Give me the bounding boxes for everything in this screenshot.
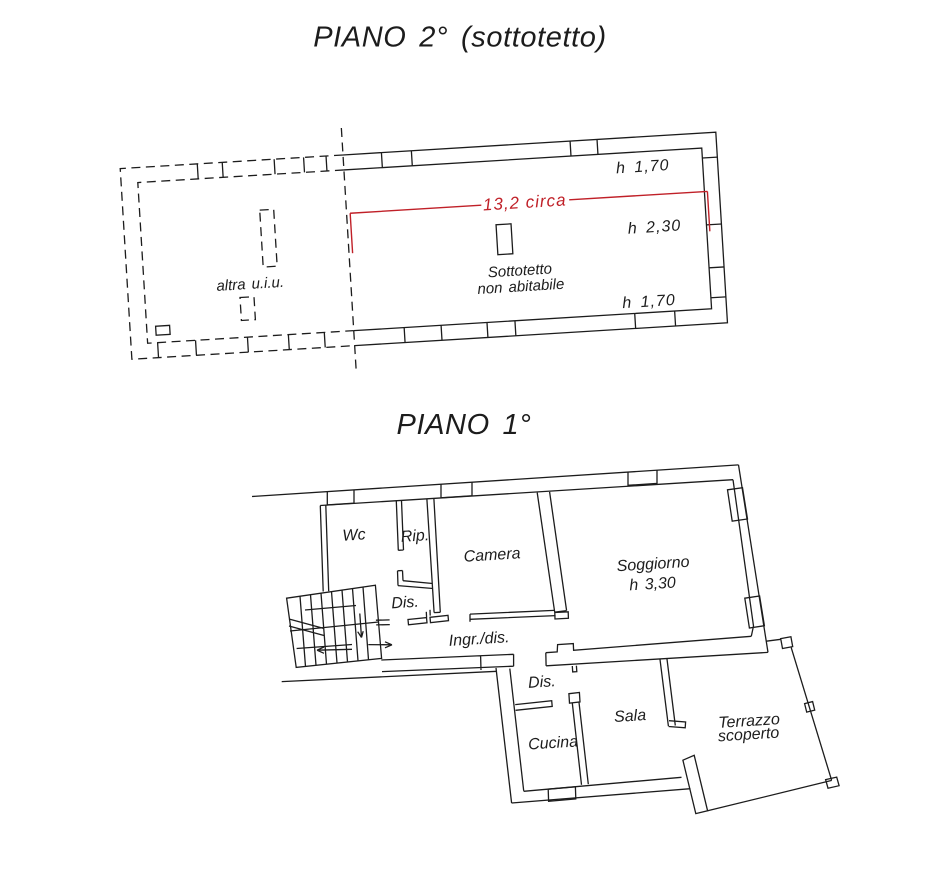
- svg-text:h 2,30: h 2,30: [627, 217, 681, 237]
- svg-text:h 1,70: h 1,70: [622, 292, 676, 312]
- svg-text:Rip.: Rip.: [400, 527, 429, 546]
- svg-text:PIANO 1°: PIANO 1°: [397, 409, 532, 441]
- svg-text:Wc: Wc: [342, 526, 366, 544]
- svg-text:Camera: Camera: [463, 545, 521, 565]
- svg-text:Sala: Sala: [614, 707, 647, 726]
- svg-text:PIANO 2° (sottotetto): PIANO 2° (sottotetto): [313, 22, 607, 54]
- svg-text:Dis.: Dis.: [528, 673, 557, 692]
- svg-text:h 1,70: h 1,70: [616, 157, 670, 177]
- svg-text:Dis.: Dis.: [391, 594, 420, 613]
- svg-text:h 3,30: h 3,30: [629, 575, 676, 595]
- svg-text:Cucina: Cucina: [528, 733, 579, 753]
